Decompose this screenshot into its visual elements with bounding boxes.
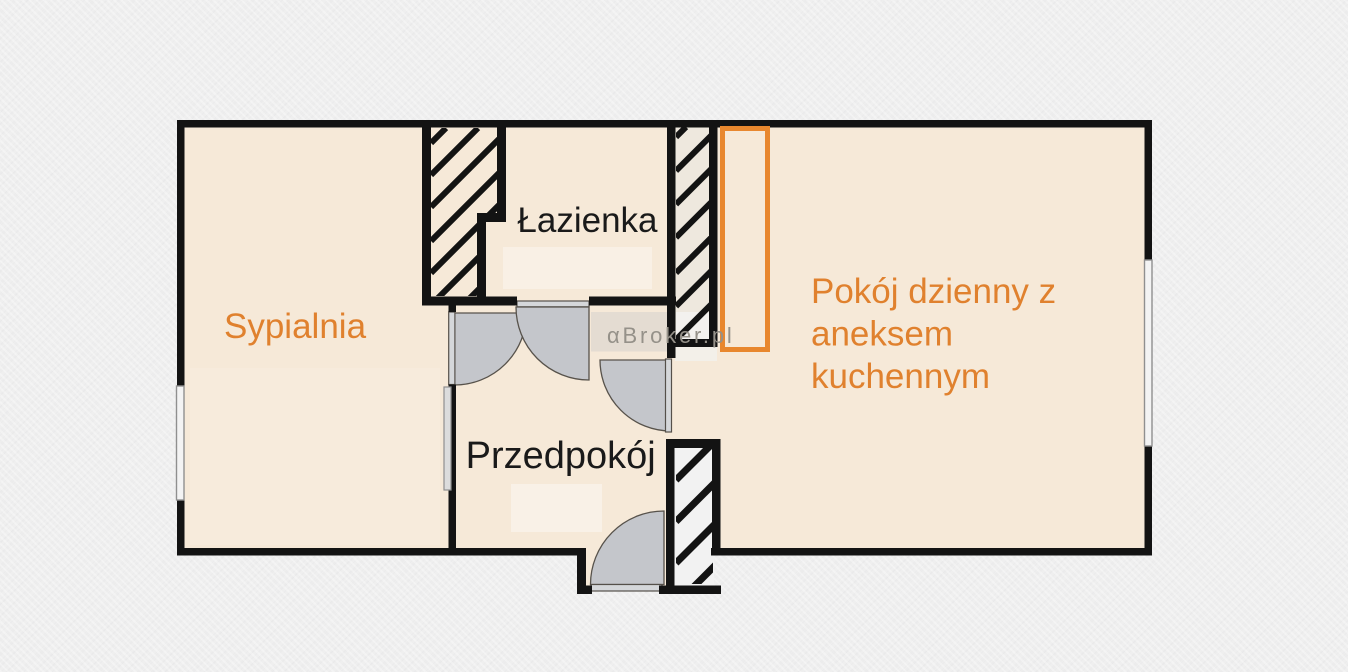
svg-text:αBroker.pl: αBroker.pl: [607, 323, 735, 348]
svg-text:kuchennym: kuchennym: [811, 357, 990, 396]
svg-text:Pokój dzienny z: Pokój dzienny z: [811, 272, 1056, 311]
svg-text:Łazienka: Łazienka: [517, 201, 658, 240]
svg-text:Przedpokój: Przedpokój: [466, 435, 656, 477]
svg-text:Sypialnia: Sypialnia: [224, 307, 367, 346]
svg-text:aneksem: aneksem: [811, 315, 953, 354]
